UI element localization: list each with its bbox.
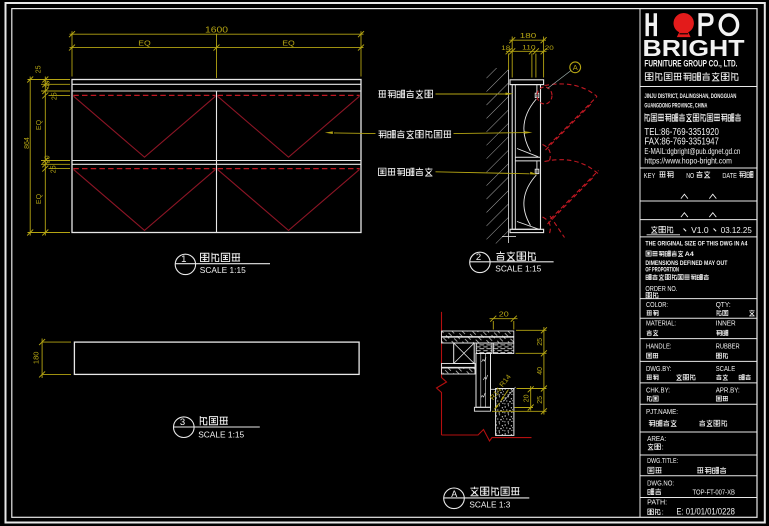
svg-text:GUANGDONG PROVINCE, CHINA: GUANGDONG PROVINCE, CHINA [644,104,707,110]
svg-text:A4: A4 [685,251,695,258]
svg-text:SCALE 1:15: SCALE 1:15 [198,429,244,439]
svg-text:20: 20 [44,155,51,163]
svg-text:THE ORIGINAL SIZE OF THIS DWG: THE ORIGINAL SIZE OF THIS DWG IN A4 [645,241,748,247]
svg-text:ORDER NO.: ORDER NO. [645,284,677,293]
svg-text:110: 110 [522,44,536,51]
svg-text:DIMENSIONS DEFINED MAY OUT: DIMENSIONS DEFINED MAY OUT [645,261,727,267]
svg-text:JINJU DISTRICT, DALINGSHAN, DO: JINJU DISTRICT, DALINGSHAN, DONGGUAN [644,94,736,100]
svg-text:V1.0: V1.0 [691,225,709,235]
svg-text:2: 2 [476,252,481,263]
svg-text:NO: NO [686,171,694,180]
svg-text::: : [662,510,664,517]
svg-text:PJT.NAME:: PJT.NAME: [646,409,678,416]
svg-text:40: 40 [537,367,544,375]
svg-text:SCALE 1:15: SCALE 1:15 [200,265,246,275]
svg-text:1600: 1600 [205,25,229,34]
svg-text:DWG.BY:: DWG.BY: [646,366,672,373]
svg-text:https://www.hopo-bright.com: https://www.hopo-bright.com [644,157,732,166]
svg-text:20: 20 [499,311,509,318]
svg-text:20: 20 [545,45,554,52]
svg-text:1: 1 [181,254,186,265]
svg-text:COLOR:: COLOR: [646,302,668,309]
svg-text:HANDLE:: HANDLE: [646,344,672,351]
svg-text:SCALE: SCALE [716,366,736,373]
svg-text:EQ: EQ [282,39,295,48]
svg-text:FURNITURE GROUP CO., LTD.: FURNITURE GROUP CO., LTD. [644,58,737,68]
svg-text:SCALE 1:3: SCALE 1:3 [469,500,510,510]
svg-text:INNER: INNER [716,321,736,328]
svg-text:FAX:86-769-3351947: FAX:86-769-3351947 [644,136,719,148]
svg-text:EQ: EQ [36,193,43,204]
svg-text:QTY:: QTY: [716,302,731,309]
svg-text:25: 25 [36,65,43,73]
svg-text:25: 25 [537,396,544,404]
svg-text:180: 180 [32,352,41,365]
svg-text:180: 180 [520,31,537,40]
svg-text:A: A [573,63,578,72]
svg-text:18: 18 [501,45,510,52]
svg-text:APR.BY:: APR.BY: [716,388,740,395]
svg-text:OF PROPORTION: OF PROPORTION [645,267,679,273]
svg-text:E: 01/01/01/0228: E: 01/01/01/0228 [676,507,735,517]
svg-text:EQ: EQ [36,119,43,130]
svg-text:CHK.BY:: CHK.BY: [646,388,670,395]
svg-text:25: 25 [51,165,58,173]
svg-text:20: 20 [524,394,531,402]
svg-text:RUBBER: RUBBER [716,344,740,351]
svg-text:864: 864 [24,137,31,149]
svg-text:40: 40 [44,80,51,88]
svg-text:DWG.NO:: DWG.NO: [647,480,674,487]
svg-text:KEY: KEY [644,171,656,180]
svg-text:25: 25 [537,338,544,346]
svg-text:MATERIAL:: MATERIAL: [646,321,676,328]
svg-text:DATE: DATE [722,171,737,180]
svg-text:E-MAIL:dgbright@pub.dgnet.gd.c: E-MAIL:dgbright@pub.dgnet.gd.cn [644,147,740,156]
svg-text:SCALE 1:15: SCALE 1:15 [495,264,541,274]
svg-text:3: 3 [180,417,185,428]
svg-text:A: A [451,489,457,499]
svg-text:EQ: EQ [138,39,151,48]
svg-text:03.12.25: 03.12.25 [721,225,752,235]
svg-text::: : [662,444,664,451]
svg-text:25: 25 [51,92,58,100]
svg-text:PATH:: PATH: [647,500,667,507]
svg-text:TOP-FT-007-XB: TOP-FT-007-XB [693,490,736,497]
svg-text:BRIGHT: BRIGHT [643,35,745,61]
svg-text:AREA:: AREA: [647,436,666,443]
svg-text:DWG.TITLE:: DWG.TITLE: [647,458,678,465]
